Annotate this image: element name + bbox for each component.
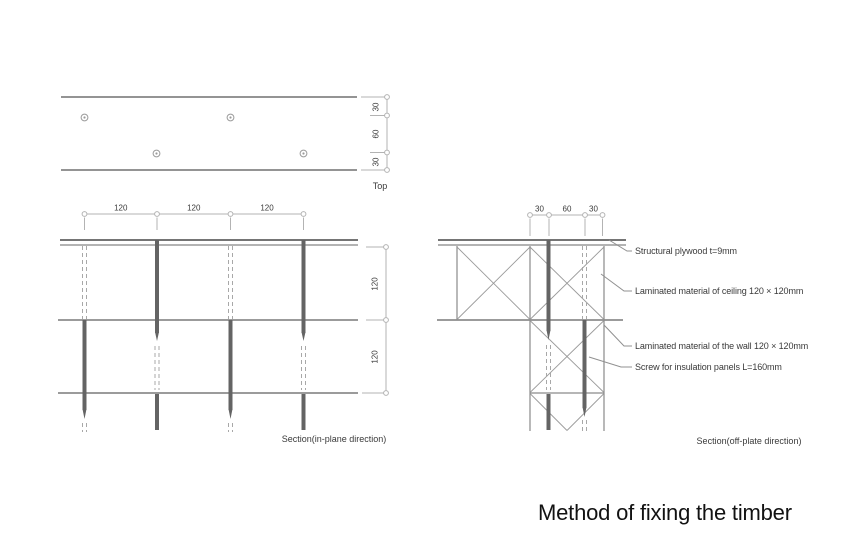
- annotation-wall-material: Laminated material of the wall 120 × 120…: [635, 341, 808, 351]
- top-view-caption: Top: [373, 181, 388, 191]
- screw-column: [155, 240, 159, 430]
- annotation-plywood: Structural plywood t=9mm: [635, 246, 737, 256]
- off-plate-section-caption: Section(off-plate direction): [697, 436, 802, 446]
- annotation-ceiling-material: Laminated material of ceiling 120 × 120m…: [635, 286, 803, 296]
- drawing-geometry: [0, 0, 850, 551]
- off-plate-top-dimension: [528, 213, 605, 236]
- timber-edges: [457, 246, 604, 431]
- dimension-label: 30: [535, 204, 544, 213]
- drawing-sheet: 30 60 30 Top 120 120 120 120 120 Section…: [0, 0, 850, 551]
- in-plane-section-caption: Section(in-plane direction): [282, 434, 387, 444]
- dimension-label: 60: [563, 204, 572, 213]
- drawing-title: Method of fixing the timber: [538, 500, 792, 526]
- off-plate-plywood-lines: [438, 240, 626, 245]
- top-view-panel-edges: [61, 97, 357, 170]
- screw-column: [83, 246, 87, 432]
- off-plate-section: [437, 213, 632, 431]
- screw-column: [583, 246, 587, 431]
- dimension-label: 120: [260, 203, 273, 212]
- dimension-label: 120: [187, 203, 200, 212]
- in-plane-top-dimension: [82, 212, 306, 230]
- dimension-label: 30: [589, 204, 598, 213]
- in-plane-layer-lines: [58, 320, 358, 393]
- screw-column: [547, 240, 551, 430]
- dimension-label: 120: [371, 350, 380, 363]
- annotation-screw: Screw for insulation panels L=160mm: [635, 362, 782, 372]
- dimension-label: 30: [372, 157, 381, 166]
- annotation-leader-lines: [589, 240, 632, 367]
- in-plane-right-dimension: [362, 245, 388, 396]
- top-view: [61, 95, 389, 173]
- screw-column: [302, 240, 306, 430]
- screw-head-icon: [81, 114, 307, 157]
- screw-column: [229, 246, 233, 432]
- dimension-label: 60: [372, 130, 381, 139]
- dimension-label: 120: [371, 277, 380, 290]
- dimension-label: 30: [372, 102, 381, 111]
- dimension-label: 120: [114, 203, 127, 212]
- in-plane-plywood-lines: [60, 240, 358, 245]
- in-plane-section: [58, 212, 388, 432]
